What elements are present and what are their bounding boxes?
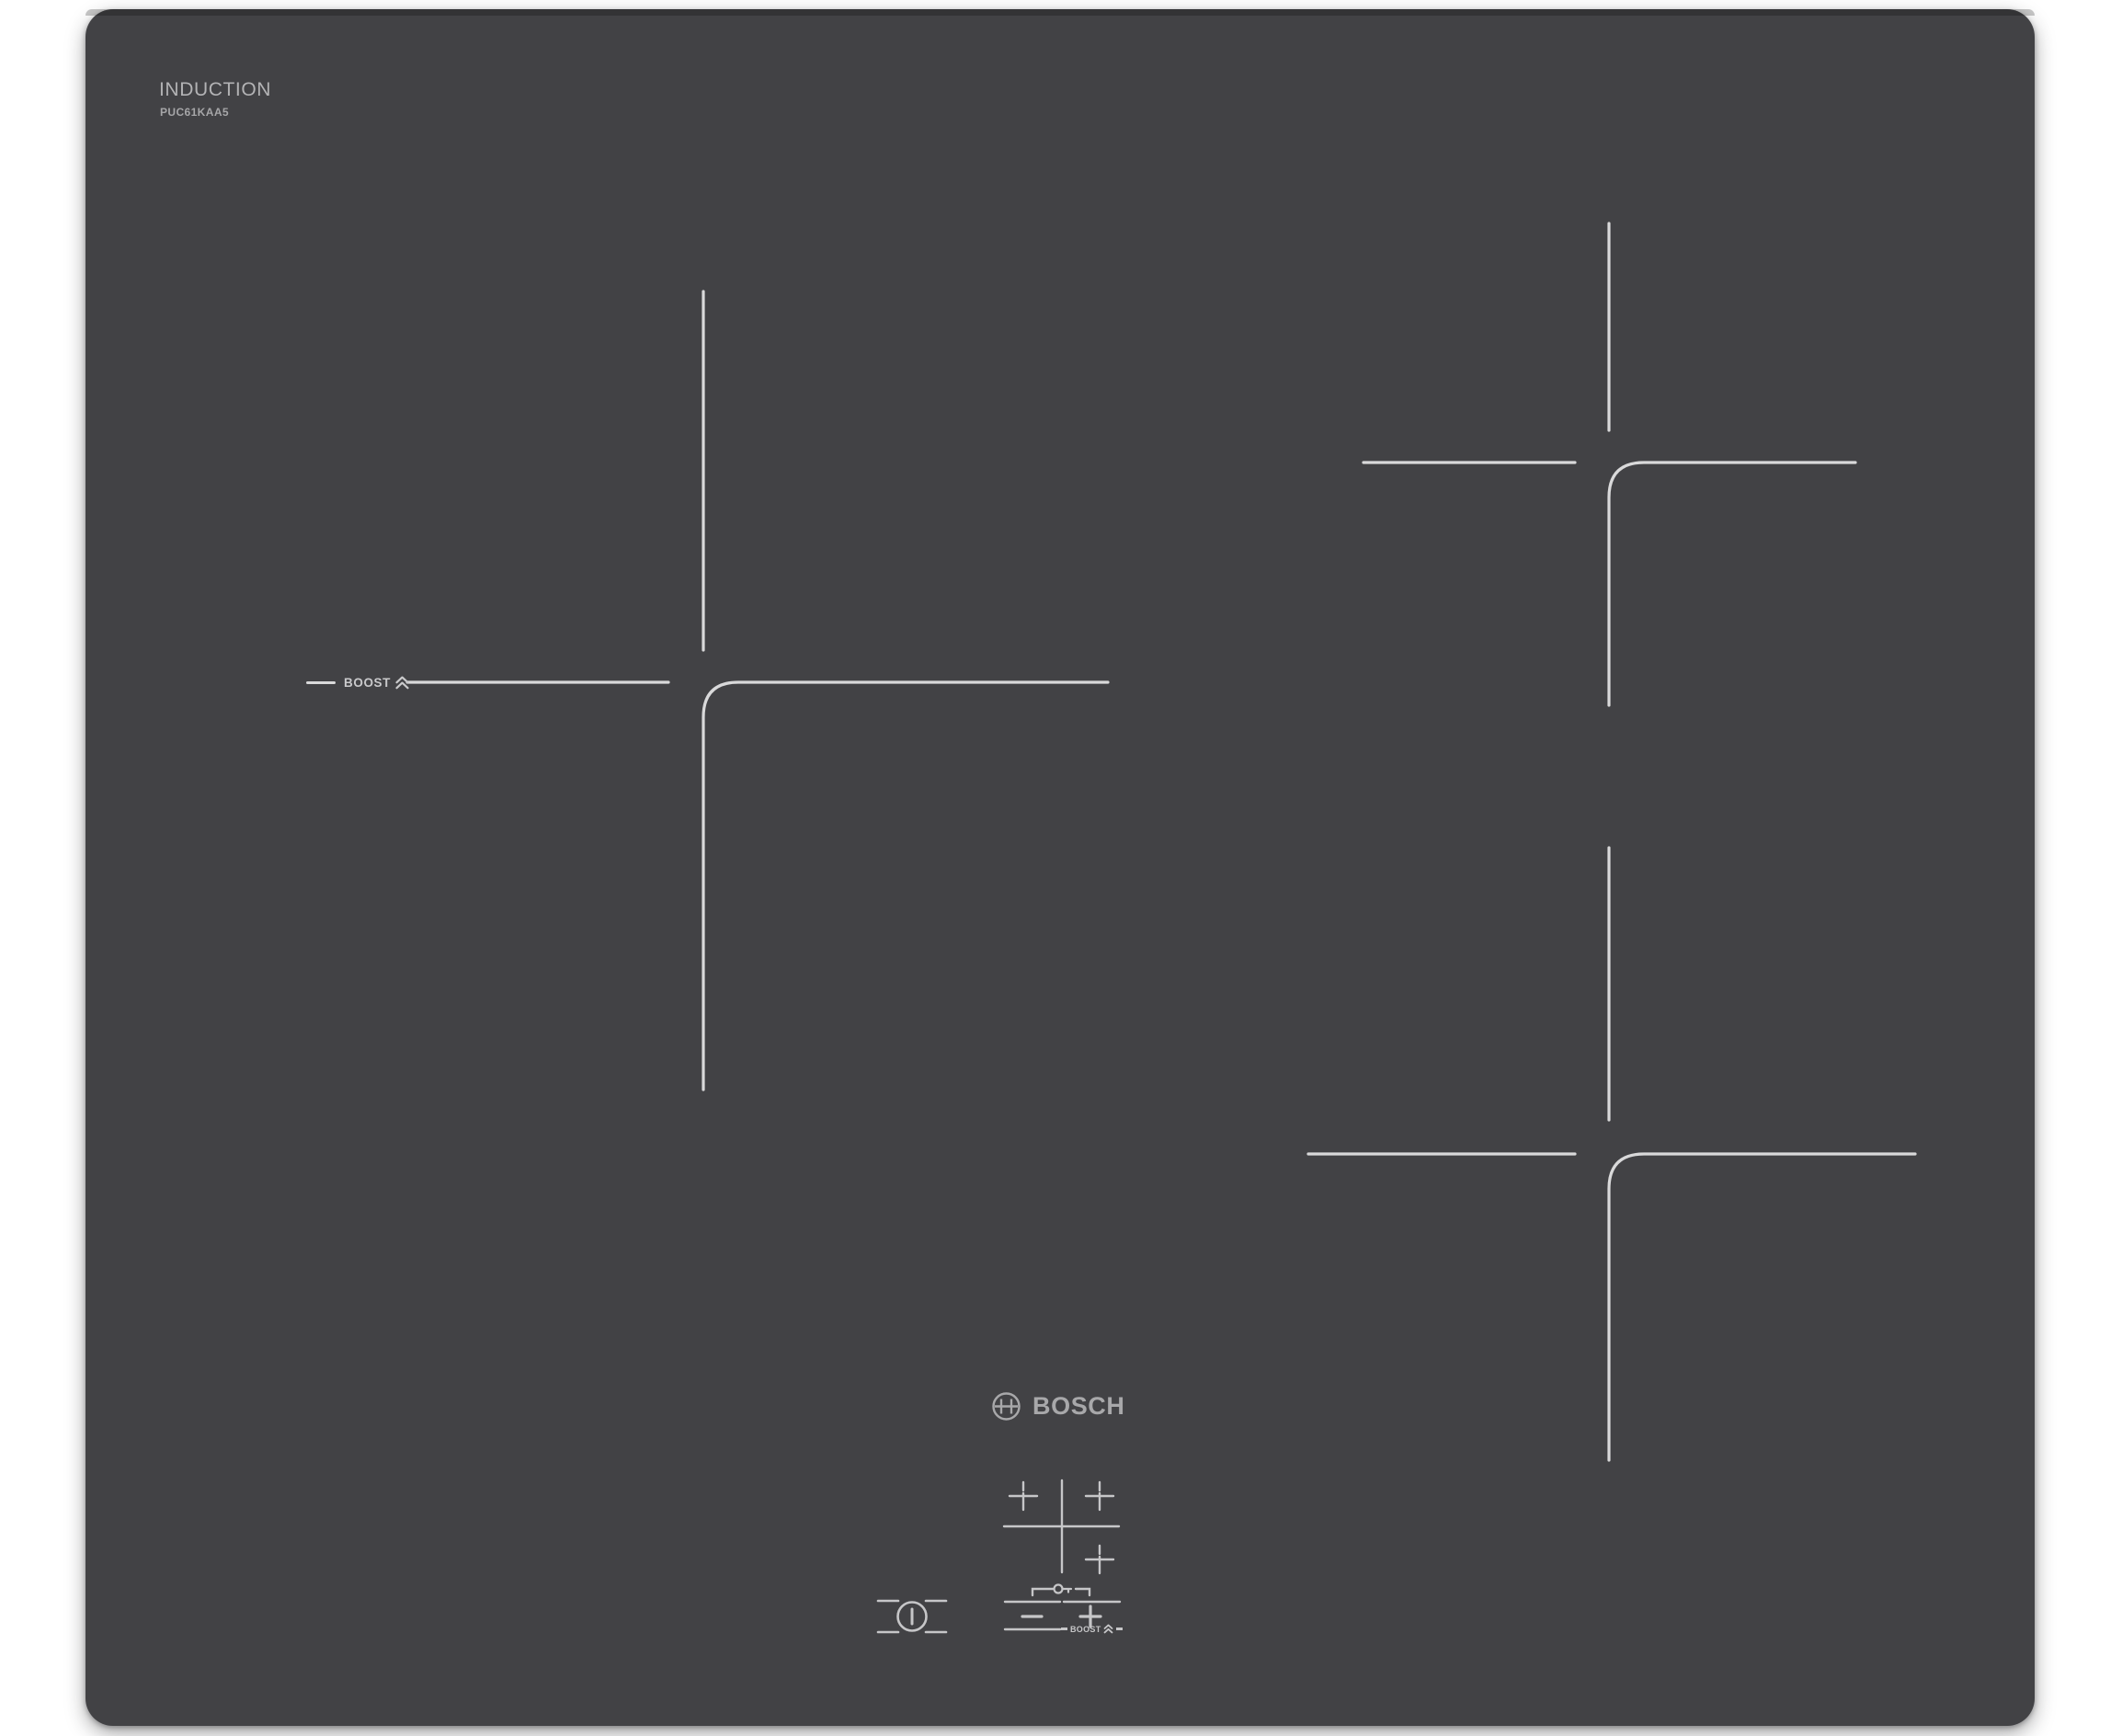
- zone-select-front-right-key[interactable]: [1086, 1546, 1113, 1573]
- zone-select-left-key[interactable]: [1010, 1482, 1037, 1510]
- childlock-control[interactable]: [1032, 1585, 1090, 1596]
- control-cluster: [1000, 1476, 1125, 1643]
- boost-label: BOOST: [344, 676, 391, 690]
- marking-dash: [1116, 1627, 1123, 1629]
- double-chevron-up-icon: [394, 675, 410, 691]
- left-zone-boost-label: BOOST: [306, 674, 410, 691]
- marking-dash: [1061, 1627, 1067, 1629]
- power-button[interactable]: [873, 1591, 952, 1642]
- bosch-armature-icon: [991, 1391, 1021, 1422]
- double-chevron-up-icon: [1103, 1624, 1113, 1634]
- zone-front-right-marking: [1308, 848, 1915, 1460]
- boost-label: BOOST: [1070, 1625, 1101, 1634]
- zone-back-right-marking: [1363, 223, 1855, 705]
- boost-key-caption: BOOST: [1061, 1621, 1123, 1637]
- zone-select-back-right-key[interactable]: [1086, 1482, 1113, 1510]
- bosch-logo-text: BOSCH: [1032, 1391, 1125, 1422]
- zone-left-marking: [407, 291, 1108, 1090]
- bosch-logo: BOSCH: [991, 1391, 1125, 1422]
- key-icon: [1055, 1585, 1072, 1593]
- minus-button[interactable]: [1005, 1602, 1060, 1629]
- zone-markings-layer: [86, 9, 2035, 1726]
- marking-dash: [306, 681, 336, 684]
- power-icon: [898, 1603, 927, 1631]
- hob-surface: INDUCTION PUC61KAA5 BOOST: [86, 9, 2035, 1726]
